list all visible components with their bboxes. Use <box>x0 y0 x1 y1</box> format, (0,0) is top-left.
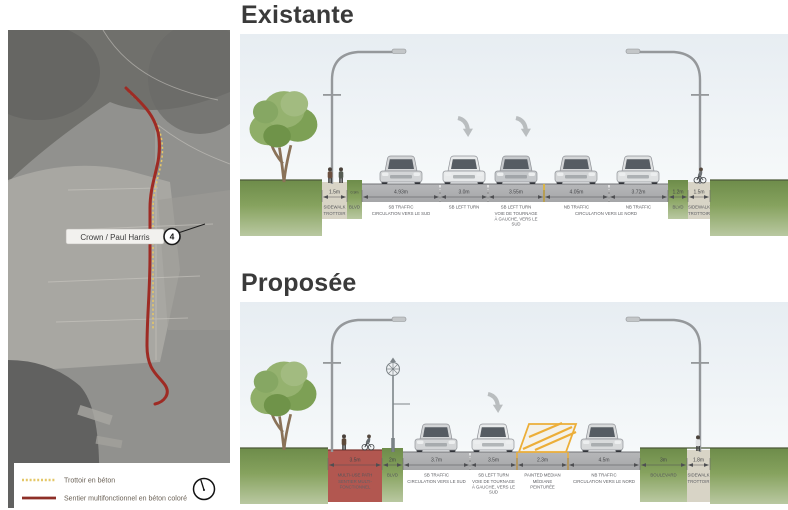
blvd-right <box>668 180 688 219</box>
lane-label-en: NB TRAFFIC <box>626 205 651 210</box>
map-legend: Trottoir en béton Sentier multifonctionn… <box>14 463 230 508</box>
dim-value: 3.7m <box>431 458 442 464</box>
lane-label-fr: TROTTOIR <box>688 211 710 216</box>
legend-label-trottoir: Trottoir en béton <box>64 478 115 485</box>
cross-section-existante: 1.5m 0.9m 4.93m 3.0m 3.55m 4.05m 3.72m 1… <box>240 34 788 244</box>
lane-label-en: SB LEFT TURN <box>449 205 479 210</box>
lane-label-fr: À GAUCHE, VERS LE <box>495 216 538 221</box>
lane-label-en: SB TRAFFIC <box>389 205 414 210</box>
lane-label-en: BLVD <box>387 473 398 478</box>
dim-value: 1.5m <box>693 190 704 196</box>
callout-label: Crown / Paul Harris <box>80 233 149 242</box>
dim-value: 3.72m <box>632 190 646 196</box>
grass-left <box>240 180 322 236</box>
lane-label-fr: TROTTOIR <box>688 479 710 484</box>
lane-label-en: PAINTED MEDIAN <box>524 473 560 478</box>
lane-label-en: SB LEFT TURN <box>501 205 531 210</box>
dim-value: 4.5m <box>598 458 609 464</box>
section-title-existante: Existante <box>241 1 354 30</box>
lane-label-fr: PEINTURÉE <box>530 484 555 489</box>
dim-value: 3.5m <box>488 458 499 464</box>
section-title-proposee: Proposée <box>241 269 357 298</box>
cross-section-proposee: 3.5m 2m 3.7m 3.5m 2.3m 4.5m 3m 1.8m MULT… <box>240 302 788 510</box>
lane-label-fr: CIRCULATION VERS LE SUD <box>407 479 465 484</box>
lane-label-fr: SUD <box>489 490 498 495</box>
lane-label-en: SB TRAFFIC <box>424 473 449 478</box>
lane-label-fr: VOIE DE TOURNAGE <box>472 479 515 484</box>
lane-label-en: SIDEWALK <box>687 473 709 478</box>
grass-right <box>710 180 788 236</box>
lane-label-fr: SUD <box>511 222 520 227</box>
lane-label-fr: SENTIER MULTI- <box>338 479 372 484</box>
grass-left <box>240 448 328 504</box>
lane-label-fr: MÉDIANE <box>533 479 553 484</box>
lane-label-fr: CIRCULATION VERS LE SUD <box>372 211 430 216</box>
lane-label-fr: VOIE DE TOURNAGE <box>495 211 538 216</box>
callout-number: 4 <box>170 232 175 242</box>
blvd-left <box>347 180 362 219</box>
painted-median-hatch <box>519 423 576 452</box>
page: Crown / Paul Harris 4 Trottoir en béton … <box>0 0 788 510</box>
north-arrow-icon <box>194 479 215 500</box>
lane-label-fr: TROTTOIR <box>324 211 346 216</box>
lane-label-fr: CIRCULATION VERS LE NORD <box>575 211 637 216</box>
dim-value: 3.5m <box>349 458 360 464</box>
lane-label-en: BLVD <box>349 205 360 210</box>
dim-value: 3.55m <box>509 190 523 196</box>
dim-value: 2m <box>389 458 396 464</box>
lane-label-en: SIDEWALK <box>323 205 345 210</box>
dim-value: 3m <box>660 458 667 464</box>
dim-value: 4.93m <box>394 190 408 196</box>
lane-label-en: MULTI-USE PATH <box>338 473 373 478</box>
dim-value: 1.8m <box>693 458 704 464</box>
lane-label-en: BOULEVARD <box>650 473 676 478</box>
lane-label-en: SIDEWALK <box>688 205 710 210</box>
sky <box>240 302 788 452</box>
lane-label-en: NB TRAFFIC <box>564 205 589 210</box>
map-panel: Crown / Paul Harris 4 Trottoir en béton … <box>8 30 230 508</box>
lane-label-en: BLVD <box>673 205 684 210</box>
dim-value: 1.2m <box>672 190 683 196</box>
lane-label-fr: CIRCULATION VERS LE NORD <box>573 479 635 484</box>
dim-value: 2.3m <box>537 458 548 464</box>
dim-value: 1.5m <box>329 190 340 196</box>
legend-label-sentier: Sentier multifonctionnel en béton coloré <box>64 496 187 503</box>
lane-label-en: SB LEFT TURN <box>478 473 508 478</box>
lane-label-en: NB TRAFFIC <box>591 473 616 478</box>
lane-label-fr: FONCTIONNEL <box>340 484 371 489</box>
dim-value: 4.05m <box>570 190 584 196</box>
dim-value: 3.0m <box>458 190 469 196</box>
dim-value: 0.9m <box>351 191 359 195</box>
grass-right <box>710 448 788 504</box>
lane-label-fr: À GAUCHE, VERS LE <box>472 484 515 489</box>
